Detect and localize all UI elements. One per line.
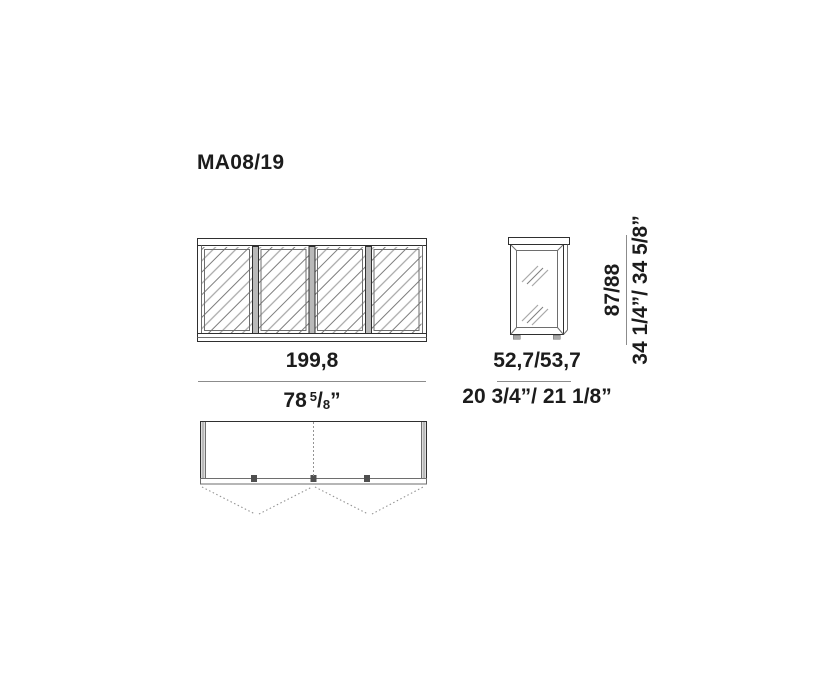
front-width-inch-denominator: 8: [323, 397, 330, 412]
plan-view: [200, 421, 427, 521]
front-width-dim-line: [198, 381, 426, 382]
side-structure: [509, 238, 570, 335]
front-width-inch-unit: ”: [330, 389, 341, 412]
glass-pane-4: [372, 247, 422, 333]
front-width-inch: 785/8”: [212, 385, 412, 417]
left-side-panel: [202, 422, 205, 478]
height-inch: 34 1/4”/ 34 5/8”: [629, 215, 653, 364]
side-depth-join-line: [564, 330, 568, 335]
height-dim-line: [626, 235, 627, 345]
height-cm: 87/88: [601, 264, 625, 317]
front-width-inch-whole: 78: [283, 389, 306, 412]
mullion-3: [366, 247, 372, 334]
side-body-outline: [511, 245, 564, 335]
back-foot: [553, 335, 560, 339]
page-title: MA08/19: [197, 151, 284, 175]
depth-cm: 52,7/53,7: [457, 349, 617, 373]
hinge-marker-2: [311, 475, 317, 482]
mullion-1: [253, 247, 259, 334]
front-foot: [513, 335, 520, 339]
glass-pane-1: [202, 247, 252, 333]
depth-dim-line: [497, 381, 571, 382]
front-elevation-view: [197, 238, 427, 344]
height-dimension-block: 87/88 34 1/4”/ 34 5/8”: [599, 201, 655, 379]
depth-inch: 20 3/4”/ 21 1/8”: [427, 385, 647, 409]
hinge-marker-1: [251, 475, 257, 482]
front-width-cm: 199,8: [232, 349, 392, 373]
side-feet: [513, 335, 560, 339]
hinge-marker-3: [364, 475, 370, 482]
mullion-2: [309, 247, 315, 334]
right-side-panel: [423, 422, 426, 478]
front-width-inch-numerator: 5: [310, 389, 317, 404]
glass-pane-2: [259, 247, 309, 333]
glass-pane-3: [315, 247, 365, 333]
side-top-panel: [509, 238, 570, 245]
side-elevation-view: [508, 237, 574, 343]
door-swing-dashed-lines: [202, 486, 425, 514]
technical-drawing-page: MA08/19: [0, 0, 840, 679]
